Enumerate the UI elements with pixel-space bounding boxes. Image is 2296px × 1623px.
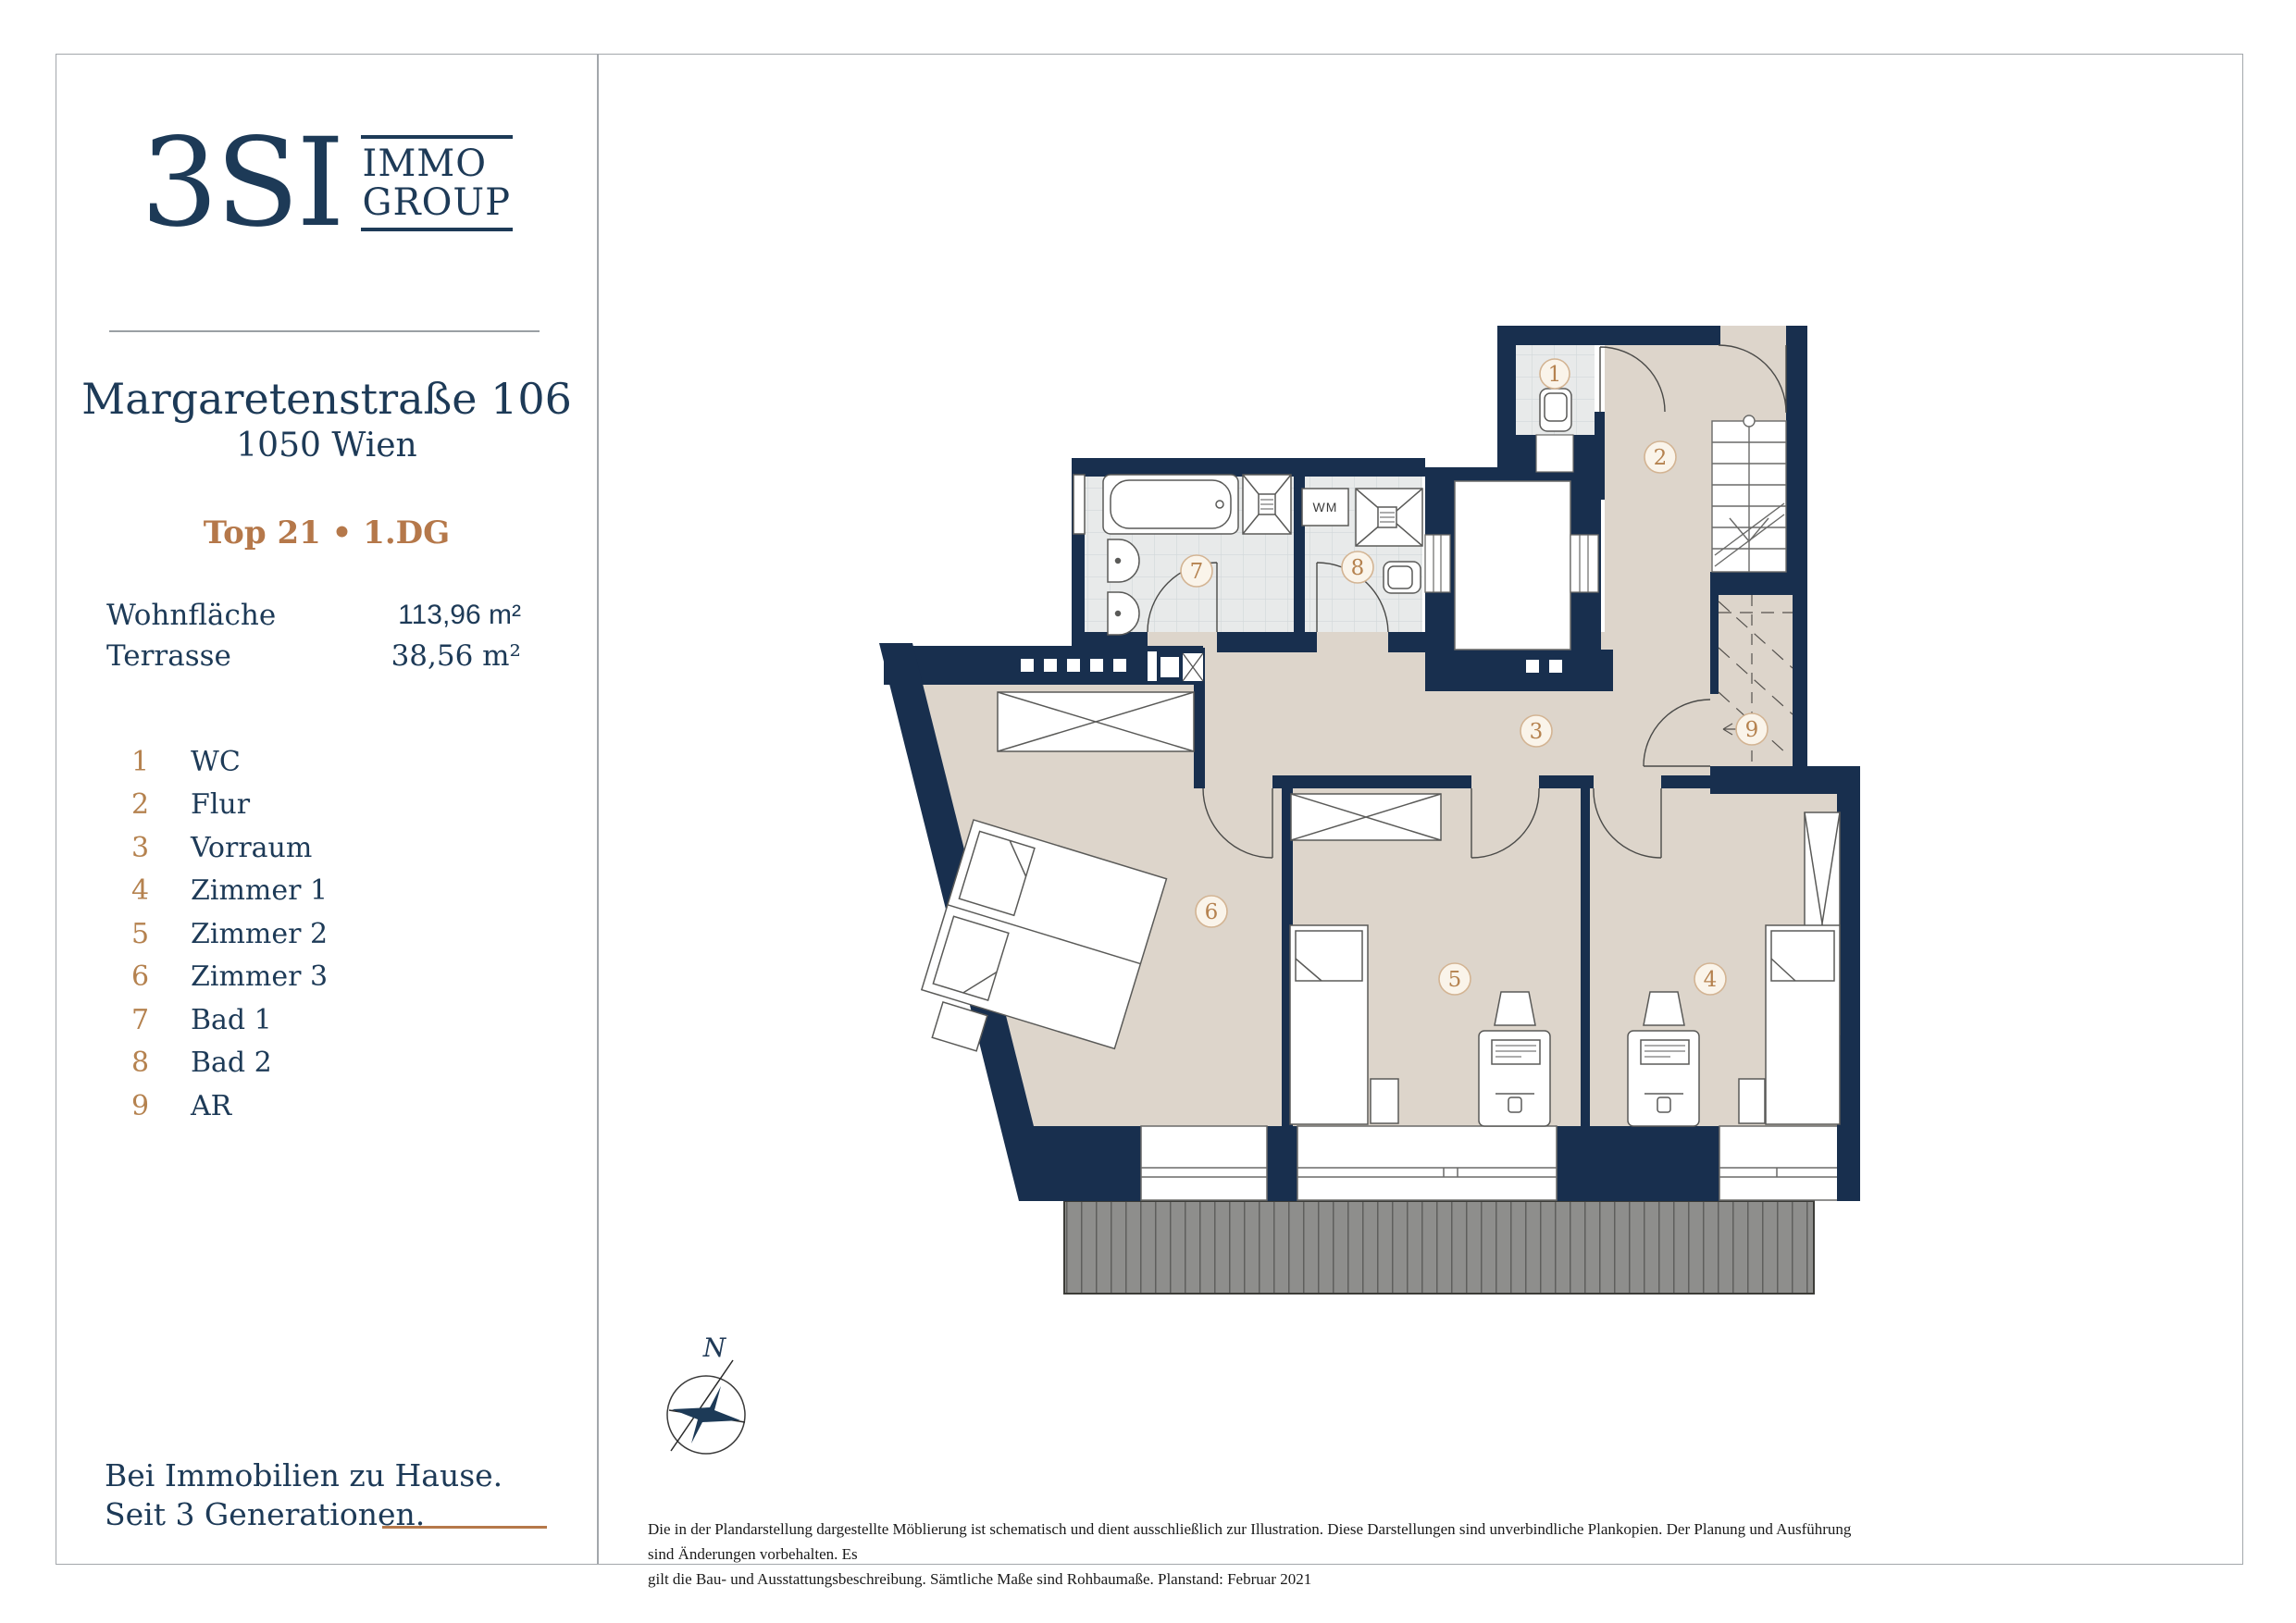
area-label: Terrasse: [106, 636, 231, 676]
legend-row: 7 Bad 1: [131, 998, 502, 1042]
legend-number: 7: [131, 1004, 157, 1036]
exterior-wall-bottom: [1034, 1126, 1860, 1201]
compass-rose: N: [648, 1323, 805, 1490]
wardrobe-room2: [1291, 794, 1441, 840]
svg-text:1: 1: [1548, 363, 1562, 387]
floor-plan-drawing: WM 1 2 3 4 5 6 7 8 9: [870, 305, 1879, 1305]
wm-label: WM: [1313, 500, 1338, 514]
terrace-door-sills: [1141, 1126, 1845, 1200]
svg-text:2: 2: [1654, 446, 1668, 470]
legend-label: Zimmer 1: [191, 874, 328, 907]
logo-name-line2: GROUP: [363, 183, 512, 222]
svg-text:4: 4: [1704, 968, 1718, 992]
area-value: 38,56 m²: [391, 636, 521, 676]
street-line: Margaretenstraße 106: [56, 374, 598, 424]
room-badge-6: 6: [1196, 896, 1227, 927]
compass: N: [648, 1323, 805, 1490]
legend-row: 5 Zimmer 2: [131, 912, 502, 956]
floorplan-page: 3SI IMMO GROUP Margaretenstraße 106 1050…: [0, 0, 2296, 1623]
bath-window: [1074, 475, 1085, 534]
legend-label: AR: [191, 1090, 231, 1122]
area-label: Wohnfläche: [106, 595, 276, 636]
legend-label: Zimmer 3: [191, 960, 328, 993]
svg-text:5: 5: [1448, 968, 1462, 992]
legend-number: 9: [131, 1090, 157, 1122]
legend-number: 3: [131, 832, 157, 864]
logo-divider-line: [109, 330, 540, 332]
svg-text:7: 7: [1190, 560, 1204, 584]
legend-row: 2 Flur: [131, 784, 502, 827]
room-badge-2: 2: [1644, 441, 1676, 473]
legend-number: 6: [131, 960, 157, 993]
room-badge-9: 9: [1736, 713, 1768, 745]
room-badge-8: 8: [1342, 551, 1373, 583]
logo-mark: 3SI: [141, 118, 342, 248]
room-badge-7: 7: [1181, 555, 1212, 587]
legend-label: Bad 1: [191, 1004, 272, 1036]
city-line: 1050 Wien: [56, 424, 598, 468]
room-badge-3: 3: [1520, 715, 1552, 747]
svg-text:9: 9: [1745, 718, 1759, 742]
logo-name-line1: IMMO: [363, 144, 512, 183]
shower-bad1: [1243, 475, 1291, 534]
sidebar-divider: [597, 54, 599, 1565]
legend-label: Zimmer 2: [191, 918, 328, 950]
legend-number: 5: [131, 918, 157, 950]
plan-disclaimer: Die in der Plandarstellung dargestellte …: [648, 1517, 1879, 1592]
disclaimer-line2: gilt die Bau- und Ausstattungsbeschreibu…: [648, 1567, 1879, 1592]
bathtub: [1103, 475, 1238, 534]
room-badge-5: 5: [1439, 963, 1471, 995]
legend-label: Vorraum: [191, 832, 312, 864]
shower-bad2: [1356, 489, 1422, 546]
legend-row: 4 Zimmer 1: [131, 870, 502, 913]
company-tagline: Bei Immobilien zu Hause. Seit 3 Generati…: [105, 1456, 503, 1534]
company-logo: 3SI IMMO GROUP: [56, 118, 598, 248]
area-summary: Wohnfläche 113,96 m² Terrasse 38,56 m²: [106, 595, 521, 676]
room-legend: 1 WC 2 Flur 3 Vorraum 4 Zimmer 1 5 Zimme…: [131, 740, 502, 1128]
legend-row: 1 WC: [131, 740, 502, 784]
terrace: [1064, 1201, 1814, 1294]
unit-label: Top 21 • 1.DG: [56, 514, 598, 551]
svg-text:8: 8: [1351, 556, 1365, 580]
disclaimer-line1: Die in der Plandarstellung dargestellte …: [648, 1517, 1879, 1567]
room-badge-4: 4: [1694, 963, 1726, 995]
legend-number: 8: [131, 1047, 157, 1079]
legend-number: 2: [131, 788, 157, 821]
legend-label: WC: [191, 746, 241, 778]
toilet-wc: [1540, 389, 1571, 431]
wardrobe-room3: [998, 692, 1194, 751]
svg-text:6: 6: [1205, 900, 1219, 924]
area-row-wohnflaeche: Wohnfläche 113,96 m²: [106, 595, 521, 636]
legend-label: Flur: [191, 788, 250, 821]
north-label: N: [702, 1332, 727, 1363]
legend-row: 6 Zimmer 3: [131, 956, 502, 999]
floor-plan: WM 1 2 3 4 5 6 7 8 9: [870, 305, 1879, 1305]
tagline-accent-line: [382, 1526, 547, 1529]
toilet-bad2: [1384, 562, 1421, 593]
legend-row: 3 Vorraum: [131, 826, 502, 870]
legend-label: Bad 2: [191, 1047, 272, 1079]
legend-number: 1: [131, 746, 157, 778]
legend-row: 8 Bad 2: [131, 1042, 502, 1085]
tagline-line1: Bei Immobilien zu Hause.: [105, 1456, 503, 1495]
svg-text:3: 3: [1530, 720, 1544, 744]
legend-row: 9 AR: [131, 1084, 502, 1128]
area-row-terrasse: Terrasse 38,56 m²: [106, 636, 521, 676]
property-address: Margaretenstraße 106 1050 Wien: [56, 374, 598, 468]
staircase: [1712, 415, 1786, 572]
logo-name: IMMO GROUP: [361, 135, 514, 231]
legend-number: 4: [131, 874, 157, 907]
room-badge-1: 1: [1540, 359, 1570, 389]
area-value: 113,96 m²: [398, 595, 521, 636]
